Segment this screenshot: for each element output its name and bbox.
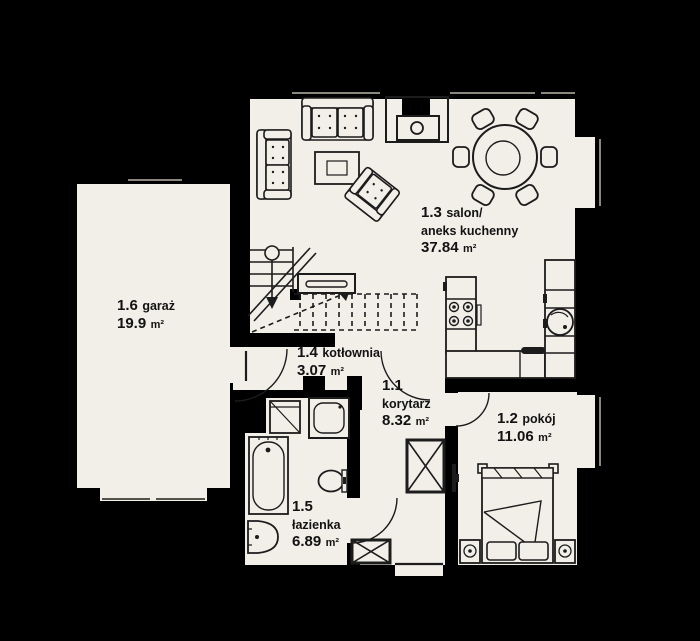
kitchen-sink-icon (547, 309, 573, 335)
sofa-icon (257, 130, 291, 199)
room-label-kotlownia: 1.4 kotłownia 3.07 m² (297, 344, 380, 379)
room-label-salon: 1.3 salon/ aneks kuchenny 37.84 m² (421, 204, 518, 257)
room-name-2: aneks kuchenny (421, 224, 518, 238)
washing-machine-icon (270, 401, 300, 433)
room-unit: m² (463, 243, 476, 255)
coffee-table-inner (327, 161, 347, 175)
stair-newel-circle (265, 246, 279, 260)
room-name: kotłownia (322, 346, 380, 360)
dining-table-inner (486, 141, 520, 175)
room-name: korytarz (382, 397, 431, 411)
toilet-icon (319, 470, 348, 492)
room-area: 11.06 (497, 428, 534, 445)
dining-chair-icon (453, 147, 469, 167)
coffee-table-icon (315, 152, 359, 184)
entry-step (395, 565, 443, 576)
room-unit: m² (538, 432, 551, 444)
pokoj-bay-window-floor (577, 395, 595, 468)
kitchen-counter-bottom (446, 351, 545, 378)
room-number: 1.2 (497, 410, 518, 427)
floor-plan-drawing (0, 0, 700, 641)
room-number: 1.5 (292, 498, 313, 515)
room-floor-garage (77, 184, 230, 488)
room-unit: m² (326, 537, 339, 549)
room-area: 6.89 (292, 533, 321, 550)
room-number: 1.4 (297, 344, 318, 361)
room-area: 37.84 (421, 239, 459, 256)
pillow-icon (519, 542, 548, 560)
stove-handle (477, 305, 481, 325)
kitchen-sink-handle (521, 347, 546, 354)
room-unit: m² (416, 416, 429, 428)
bathroom-door-opening (347, 498, 360, 543)
room-area: 8.32 (382, 412, 411, 429)
room-number: 1.1 (382, 377, 403, 394)
sofa-left-cushion-1 (266, 140, 289, 165)
bed-icon (482, 468, 553, 563)
room-label-pokoj: 1.2 pokój 11.06 m² (497, 410, 556, 445)
chimney-flue (402, 97, 430, 118)
washbasin-icon (248, 521, 278, 553)
sofa-left-arm-top (264, 130, 291, 139)
sofa-top-arm-right (364, 106, 373, 140)
bathtub-icon (249, 437, 288, 514)
sofa-top-cushion-2 (338, 108, 363, 137)
room-name: garaż (142, 299, 175, 313)
room-number: 1.3 (421, 204, 442, 221)
sofa-left-arm-bottom (264, 190, 291, 199)
sofa-top-cushion-1 (312, 108, 337, 137)
room-label-garaz: 1.6 garaż 19.9 m² (117, 297, 175, 332)
radiator (298, 274, 355, 293)
kitchen-counter-left (446, 277, 476, 353)
sofa-left-cushion-2 (266, 165, 289, 190)
room-label-lazienka: 1.5 łazienka 6.89 m² (292, 498, 341, 551)
nightstand-icon (555, 540, 575, 563)
ventilation-shaft-icon (407, 440, 444, 492)
shower-icon (309, 398, 349, 438)
sofa-left-back (257, 130, 266, 199)
room-label-korytarz: 1.1 korytarz 8.32 m² (382, 377, 431, 430)
room-unit: m² (151, 319, 164, 331)
fireplace-hearth (397, 116, 439, 140)
sofa-top-back (302, 98, 373, 108)
floor-plan: 1.6 garaż 19.9 m² 1.3 salon/ aneks kuche… (0, 0, 700, 641)
sofa-top-arm-left (302, 106, 311, 140)
room-area: 3.07 (297, 362, 326, 379)
wall-stub-bathroom (303, 376, 325, 398)
room-name: łazienka (292, 518, 341, 532)
sofa-icon (302, 98, 373, 140)
room-name: salon/ (446, 206, 482, 220)
nightstand-icon (460, 540, 480, 563)
dining-chair-icon (541, 147, 557, 167)
room-unit: m² (331, 366, 344, 378)
bedroom-door-opening (445, 393, 458, 426)
salon-bay-window-floor (575, 137, 595, 208)
room-area: 19.9 (117, 315, 146, 332)
room-name: pokój (522, 412, 555, 426)
ventilation-shaft-icon (352, 540, 390, 563)
room-number: 1.6 (117, 297, 138, 314)
pillow-icon (487, 542, 516, 560)
